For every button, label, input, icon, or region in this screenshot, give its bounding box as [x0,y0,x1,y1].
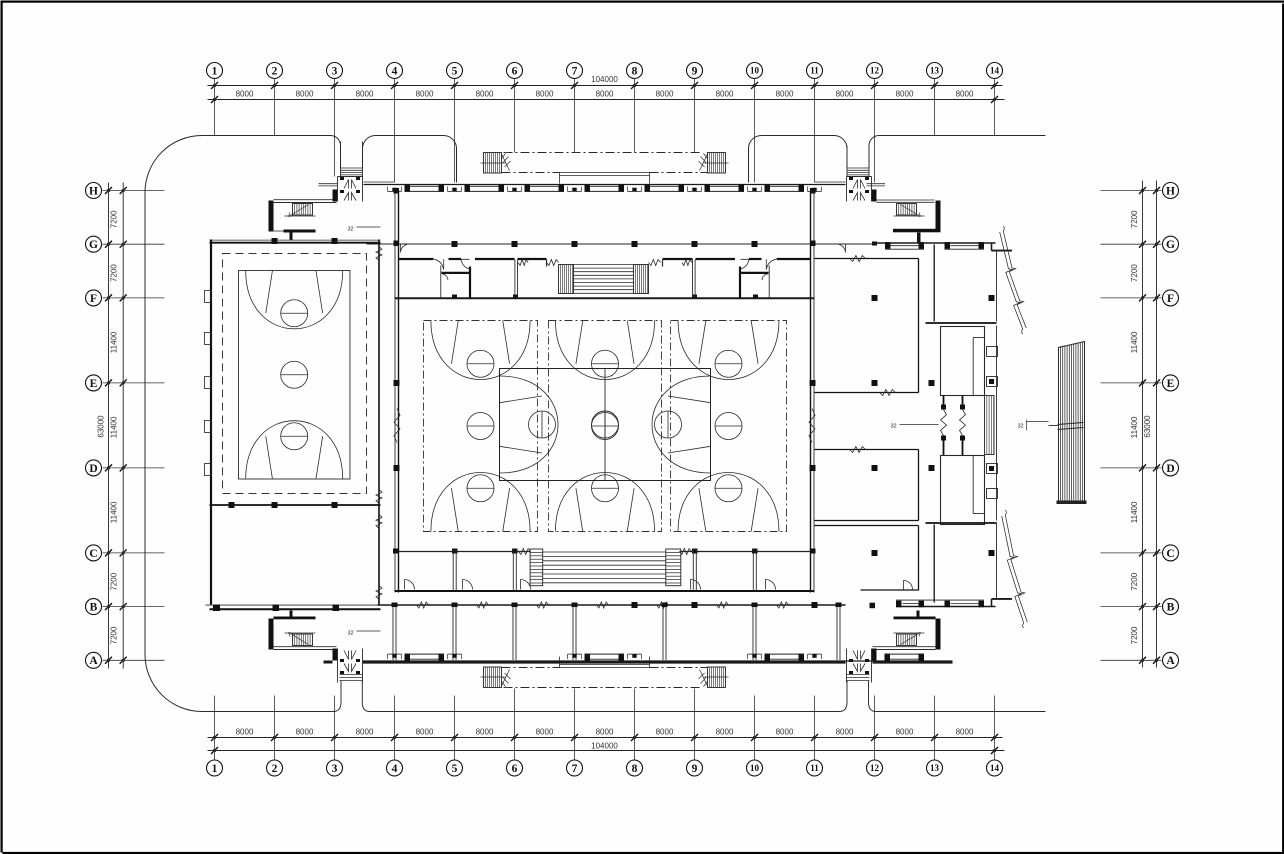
svg-text:8: 8 [632,65,638,77]
svg-text:32: 32 [347,631,353,637]
svg-text:8000: 8000 [356,728,374,737]
svg-text:11400: 11400 [110,416,119,438]
svg-text:12: 12 [870,66,880,76]
svg-text:7200: 7200 [1130,210,1139,228]
svg-text:E: E [1167,378,1175,390]
svg-text:7200: 7200 [1130,264,1139,282]
svg-text:8000: 8000 [296,728,314,737]
svg-text:14: 14 [990,763,1000,773]
svg-text:7200: 7200 [110,264,119,282]
svg-text:8000: 8000 [836,728,854,737]
svg-text:A: A [1166,655,1175,667]
svg-text:8000: 8000 [956,728,974,737]
svg-text:5: 5 [452,65,458,77]
svg-text:2: 2 [272,763,278,775]
svg-text:4: 4 [392,763,398,775]
svg-text:D: D [89,463,97,475]
svg-text:9: 9 [692,65,698,77]
svg-text:4: 4 [392,65,398,77]
svg-text:F: F [1167,293,1174,305]
svg-text:5: 5 [452,763,458,775]
svg-text:32: 32 [1017,424,1023,430]
svg-text:7200: 7200 [1130,626,1139,644]
svg-text:63000: 63000 [1143,415,1152,438]
svg-text:11400: 11400 [1130,331,1139,353]
svg-text:8000: 8000 [536,728,554,737]
svg-text:H: H [89,185,98,197]
svg-text:F: F [90,293,97,305]
svg-text:9: 9 [692,763,698,775]
svg-text:C: C [1166,548,1174,560]
svg-text:8000: 8000 [896,90,914,99]
svg-text:11400: 11400 [110,501,119,523]
svg-text:8000: 8000 [716,90,734,99]
svg-text:8000: 8000 [416,728,434,737]
svg-text:3: 3 [332,65,338,77]
svg-text:8000: 8000 [716,728,734,737]
svg-text:B: B [1167,602,1175,614]
svg-text:7200: 7200 [110,572,119,590]
svg-text:8000: 8000 [776,90,794,99]
svg-text:63000: 63000 [97,415,106,438]
svg-text:14: 14 [990,66,1000,76]
svg-text:8: 8 [632,763,638,775]
svg-text:G: G [89,239,98,251]
svg-text:7: 7 [572,65,578,77]
svg-text:E: E [90,378,98,390]
svg-text:B: B [90,602,98,614]
svg-text:8000: 8000 [836,90,854,99]
svg-text:8000: 8000 [296,90,314,99]
svg-text:G: G [1166,239,1175,251]
svg-text:32: 32 [347,227,353,233]
svg-text:6: 6 [512,65,518,77]
svg-text:8000: 8000 [596,728,614,737]
svg-text:7200: 7200 [110,626,119,644]
svg-text:12: 12 [870,763,880,773]
svg-text:C: C [89,548,97,560]
svg-text:8000: 8000 [656,90,674,99]
svg-text:7200: 7200 [110,210,119,228]
svg-text:8000: 8000 [476,90,494,99]
svg-text:11400: 11400 [1130,501,1139,523]
svg-text:11400: 11400 [110,331,119,353]
svg-text:8000: 8000 [956,90,974,99]
svg-text:8000: 8000 [356,90,374,99]
svg-text:8000: 8000 [416,90,434,99]
svg-text:11: 11 [810,66,819,76]
svg-text:10: 10 [750,763,760,773]
svg-text:11: 11 [810,763,819,773]
svg-text:6: 6 [512,763,518,775]
svg-text:10: 10 [750,66,760,76]
svg-text:11400: 11400 [1130,416,1139,438]
svg-text:3: 3 [332,763,338,775]
svg-text:8000: 8000 [236,90,254,99]
svg-text:7200: 7200 [1130,572,1139,590]
svg-text:13: 13 [930,763,940,773]
svg-text:8000: 8000 [656,728,674,737]
svg-text:2: 2 [272,65,278,77]
svg-text:1: 1 [212,65,218,77]
svg-text:1: 1 [212,763,218,775]
svg-text:8000: 8000 [896,728,914,737]
svg-text:8000: 8000 [236,728,254,737]
svg-text:8000: 8000 [776,728,794,737]
svg-text:8000: 8000 [596,90,614,99]
svg-text:D: D [1166,463,1174,475]
svg-text:32: 32 [890,424,896,430]
svg-text:7: 7 [572,763,578,775]
svg-text:A: A [89,655,98,667]
svg-text:104000: 104000 [591,75,618,84]
svg-text:8000: 8000 [476,728,494,737]
svg-text:13: 13 [930,66,940,76]
svg-text:H: H [1166,185,1175,197]
svg-text:8000: 8000 [536,90,554,99]
svg-text:104000: 104000 [591,742,618,751]
